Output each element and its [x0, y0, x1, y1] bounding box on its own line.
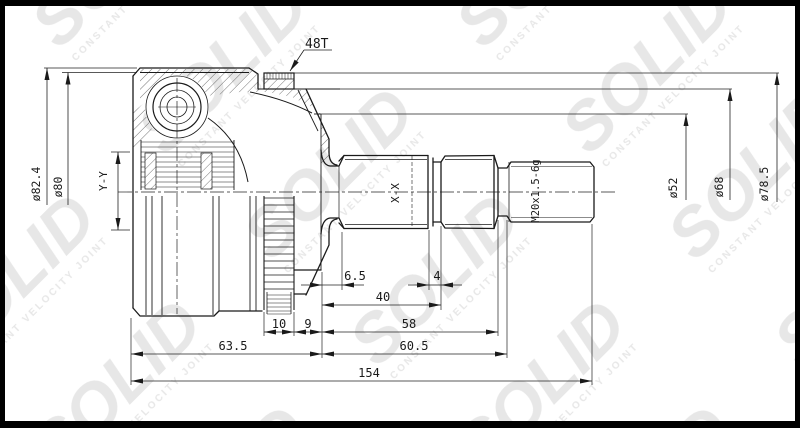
frame-border-bottom [0, 421, 800, 428]
drawing-canvas: SOLID CONSTANT VELOCITY JOINT [0, 0, 800, 428]
dim-shaft-length: 60.5 [400, 339, 429, 353]
dim-groove-width: 4 [433, 269, 440, 283]
frame-border-right [795, 0, 800, 428]
frame-border-top [0, 0, 800, 6]
dim-ring-seat-diameter: ø68 [712, 177, 726, 198]
watermark-layer [0, 0, 800, 428]
dim-seal-seat-diameter: ø52 [666, 178, 680, 199]
label-thread-spec: M20x1.5-6g [530, 159, 542, 222]
label-section-hub: Y-Y [97, 171, 110, 191]
dim-housing-outer-diameter: ø82.4 [29, 167, 43, 202]
dim-shaft-to-thread: 58 [402, 317, 416, 331]
dim-seat-width: 9 [304, 317, 311, 331]
dim-total-length: 154 [358, 366, 380, 380]
dim-ring-width: 10 [272, 317, 286, 331]
dim-spline-to-groove: 40 [376, 290, 390, 304]
dim-housing-length: 63.5 [219, 339, 248, 353]
label-section-shaft: X-X [389, 183, 402, 203]
dim-abs-ring-diameter: ø78.5 [757, 167, 771, 202]
label-teeth-count: 48T [305, 37, 329, 52]
frame-border-left [0, 0, 5, 428]
cv-joint-technical-drawing: SOLID CONSTANT VELOCITY JOINT [0, 0, 800, 428]
dim-housing-step-diameter: ø80 [51, 177, 65, 198]
dim-seal-offset: 6.5 [344, 269, 366, 283]
